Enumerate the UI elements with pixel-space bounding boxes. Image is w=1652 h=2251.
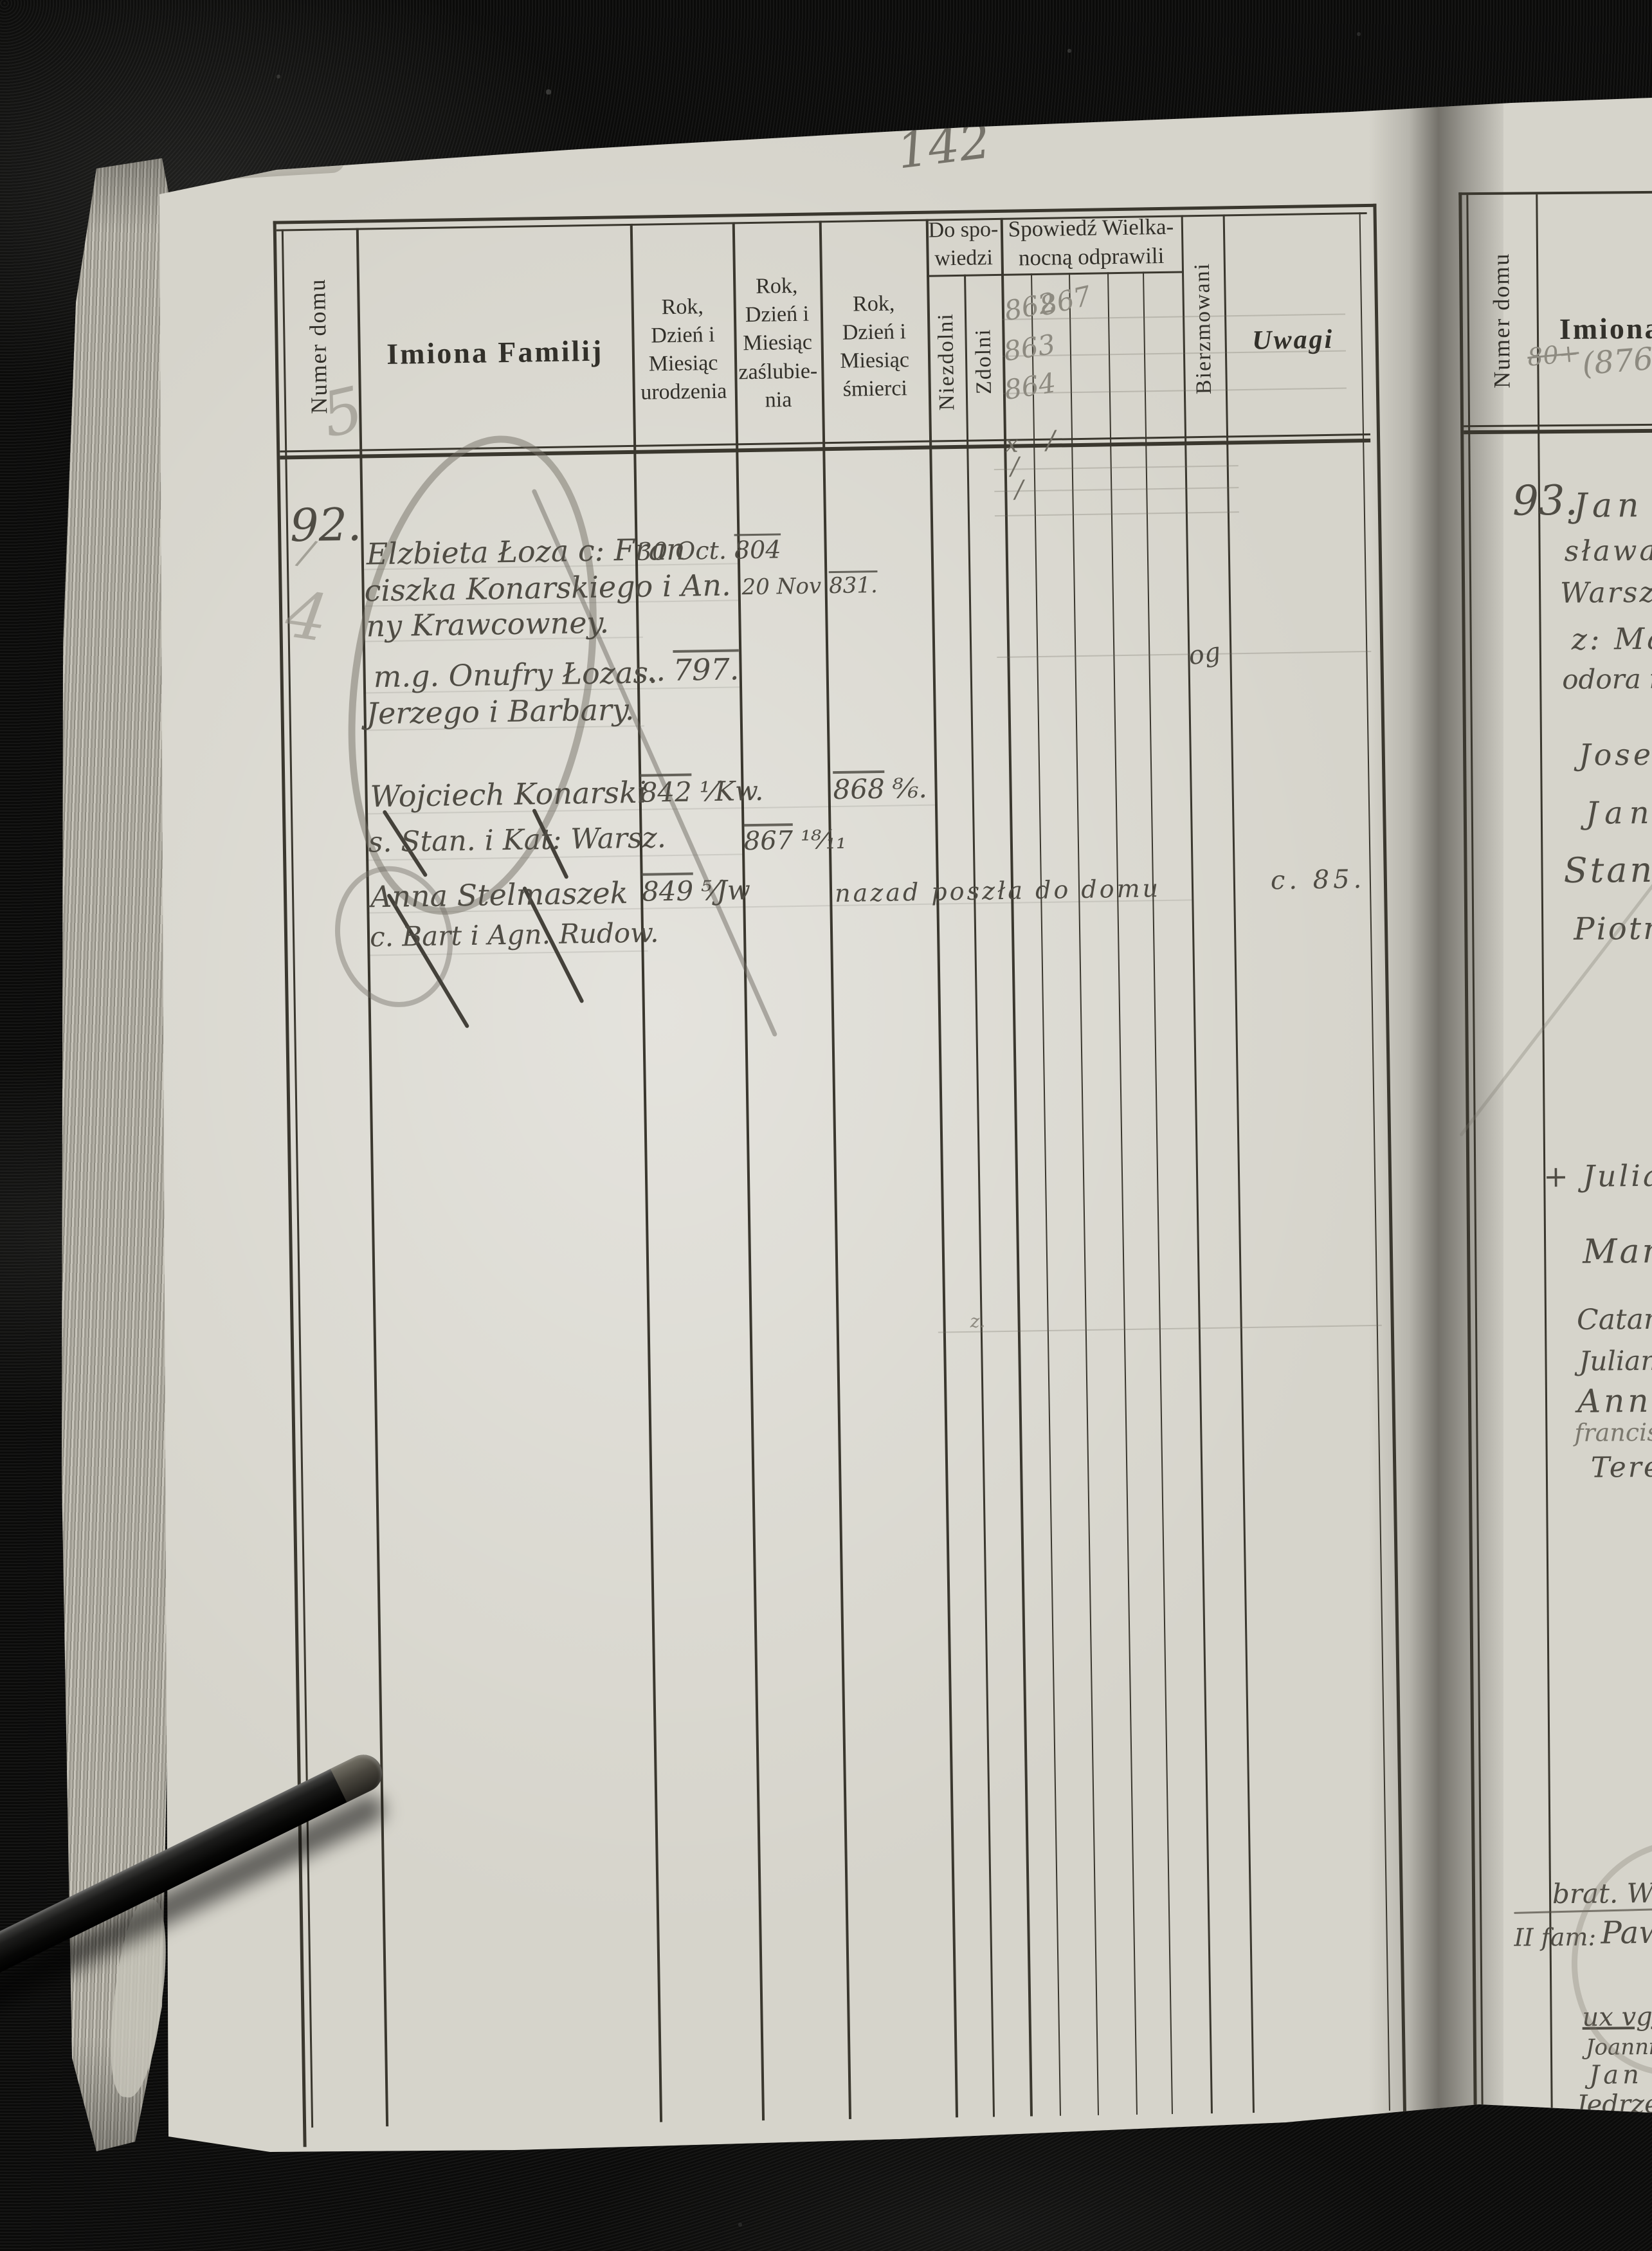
header-smierci: Rok, Dzień i Miesiąc śmierci bbox=[820, 253, 930, 441]
death-year: 868 bbox=[833, 773, 885, 805]
col-line-uwagi bbox=[1223, 214, 1255, 2113]
dust-specks bbox=[0, 0, 1, 1]
entry92-line5-name: Jerzego i Barbary. bbox=[366, 692, 635, 731]
spowiedz-subline bbox=[1107, 272, 1138, 2115]
entry92-line8-uwagi: c. 85. bbox=[1271, 864, 1366, 895]
entry92-line8-birth: 849⁵⁄Jw bbox=[642, 874, 751, 907]
entry92-line9-name: c. Bart i Agn. Rudow. bbox=[370, 916, 659, 952]
header-niezdolni: Niezdolni bbox=[928, 275, 965, 449]
pencil-spowiedz-864: 864 bbox=[1002, 367, 1058, 406]
entry93-line: sława i S bbox=[1564, 534, 1652, 568]
entry92-line7-marriage: 867¹⁸⁄₁₁ bbox=[743, 825, 846, 856]
entry92-line2-marriage: 20 Nov831. bbox=[741, 572, 878, 600]
header-uwagi: Uwagi bbox=[1223, 246, 1363, 434]
spowiedz-subline bbox=[1143, 271, 1173, 2114]
entry93-line: z: Maria bbox=[1572, 621, 1652, 657]
pencil-crossed-number: 80+ bbox=[1526, 338, 1580, 371]
header-bierzmowani: Bierzmowani bbox=[1181, 222, 1226, 435]
col-line-smierci bbox=[926, 219, 958, 2118]
header-numer-domu-right: Numer domu bbox=[1469, 220, 1534, 420]
entry93-line: Jan bbox=[1586, 795, 1652, 832]
entry92-line4-bierzmowani: og bbox=[1186, 637, 1222, 671]
entry93-line: Piotr. bbox=[1574, 911, 1652, 947]
entry93-line: Teres bbox=[1591, 1451, 1652, 1484]
header-zdolni-label: Zdolni bbox=[969, 328, 999, 394]
header-bottom-rule-thick bbox=[1464, 429, 1652, 434]
photo-scene: pag 198. 142 bbox=[0, 0, 1652, 2251]
entry92-line1-birth: 30 Oct.804 bbox=[636, 535, 781, 566]
entry93-line: Anna bbox=[1577, 1382, 1652, 1420]
pencil-ledger-line bbox=[995, 511, 1239, 516]
header-zaslubienia: Rok, Dzień i Miesiąc zaślubie- nia bbox=[732, 244, 822, 442]
entry93-line: Warszaw bbox=[1560, 576, 1652, 610]
entry93-line: Catarin bbox=[1577, 1303, 1652, 1336]
pencil-arc bbox=[1459, 859, 1652, 1136]
header-numer-domu-right-label: Numer domu bbox=[1486, 252, 1517, 388]
entry93-line: + Juliann bbox=[1543, 1158, 1652, 1194]
pencil-ledger-line bbox=[997, 651, 1371, 658]
pencil-ledger-line bbox=[994, 465, 1239, 470]
spowiedz-subline bbox=[1031, 273, 1061, 2116]
entry92-line6-birth: 842¹⁄Kw. bbox=[640, 775, 763, 808]
pencil-spowiedz-867: 867 bbox=[1037, 280, 1094, 322]
pencil-ledger-line bbox=[994, 487, 1239, 492]
entry92-line8-note: nazad poszła do domu bbox=[835, 874, 1161, 907]
entry93-number: 93. bbox=[1512, 477, 1578, 525]
header-imiona-right: Imiona bbox=[1559, 239, 1652, 419]
register-table-right: Numer domu Imiona 80+ (876– 93. Jan Kon … bbox=[1458, 191, 1652, 2115]
birth-dots: .. bbox=[646, 653, 666, 688]
entry93-line-pencil: francis bbox=[1574, 1418, 1652, 1447]
entry92-line4-name: m.g. Onufry Łozas. bbox=[373, 655, 658, 694]
marriage-day: 20 Nov bbox=[741, 573, 821, 600]
entry93-line: odora i Ma bbox=[1562, 662, 1652, 695]
marriage-year: 867 bbox=[743, 826, 793, 856]
birth-day: 30 Oct. bbox=[636, 536, 727, 566]
col-line-bierzmowani bbox=[1181, 215, 1213, 2113]
header-do-spowiedzi: Do spo- wiedzi bbox=[926, 214, 1001, 275]
entry92-line4-birth: ..797. bbox=[646, 652, 740, 688]
entry92-line6-death: 868⁸⁄₆. bbox=[833, 772, 927, 805]
entry92-line3-name: ny Krawcowney. bbox=[366, 605, 609, 644]
entry92-line2-name: ciszka Konarskiego i An. bbox=[364, 568, 731, 608]
header-zdolni: Zdolni bbox=[964, 274, 1004, 448]
header-spowiedz: Spowiedź Wielka- nocną odprawili bbox=[1001, 211, 1182, 273]
entry93-line: Jan Kon bbox=[1574, 486, 1652, 525]
open-book-pages: pag 198. 142 bbox=[0, 0, 1652, 2251]
col-line-imiona bbox=[630, 224, 662, 2122]
col-line-urodzenia bbox=[732, 222, 765, 2120]
register-table-left: Numer domu Imiona Familij Rok, Dzień i M… bbox=[273, 204, 1407, 2147]
birth-year: 849 bbox=[642, 875, 694, 907]
entry92-number: 92. bbox=[289, 498, 362, 552]
entry93-line: Josef S. bbox=[1579, 736, 1652, 772]
spowiedz-subline bbox=[1069, 273, 1099, 2115]
pencil-small-z: z. bbox=[970, 1310, 985, 1331]
col-line-zaslubienia bbox=[819, 221, 851, 2119]
entry93-line: Juliann bbox=[1579, 1345, 1652, 1377]
entry93-line: Marya bbox=[1583, 1232, 1652, 1271]
pencil-spowiedz-863: 863 bbox=[1002, 328, 1058, 367]
header-bierzmowani-label: Bierzmowani bbox=[1188, 262, 1219, 395]
col-line-niezdolni-zdolni bbox=[964, 275, 995, 2117]
header-imiona-familij: Imiona Familij bbox=[357, 257, 634, 448]
birth-year: 842 bbox=[640, 776, 692, 808]
header-niezdolni-label: Niezdolni bbox=[932, 313, 962, 411]
header-bottom-rule bbox=[1464, 424, 1652, 427]
entry92-line7-name: s. Stan. i Kat: Warsz. bbox=[368, 821, 666, 859]
header-urodzenia: Rok, Dzień i Miesiąc urodzenia bbox=[631, 255, 736, 443]
entry92-line6-name: Wojciech Konarski bbox=[370, 775, 647, 814]
birth-frac: ¹⁄Kw. bbox=[699, 775, 763, 808]
confession-mark-slash: / bbox=[1046, 426, 1055, 455]
entry93-line: Stanis bbox=[1563, 849, 1652, 891]
pencil-circled-number: (876– bbox=[1581, 340, 1652, 382]
marriage-frac: ¹⁸⁄₁₁ bbox=[801, 825, 847, 855]
birth-year: 804 bbox=[734, 535, 781, 564]
confession-mark-slash: / bbox=[1015, 475, 1024, 503]
death-frac: ⁸⁄₆. bbox=[892, 772, 927, 805]
entry92-line8-name: Anna Stelmaszek bbox=[370, 875, 628, 914]
birth-year: 797. bbox=[673, 652, 739, 688]
marriage-year: 831. bbox=[829, 572, 878, 599]
birth-frac: ⁵⁄Jw bbox=[701, 874, 750, 906]
